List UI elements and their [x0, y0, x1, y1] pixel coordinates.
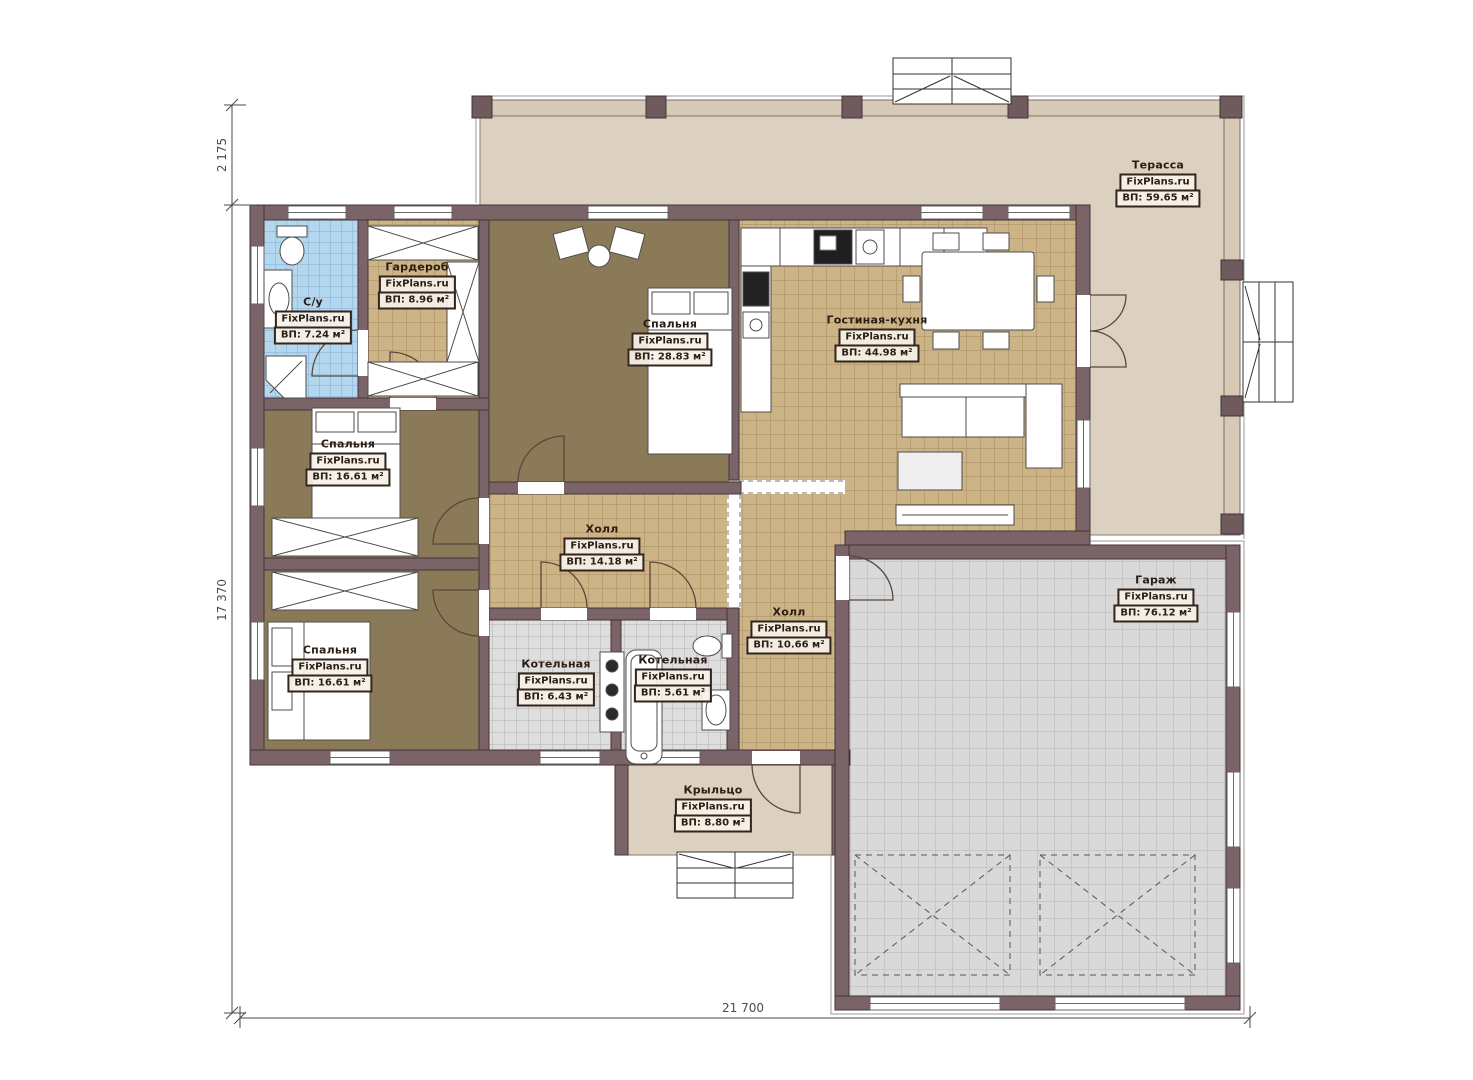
window-icon [588, 206, 668, 219]
room-name: Спальня [643, 318, 697, 331]
room-name: Спальня [321, 438, 375, 451]
room-area: ВП: 59.65 м² [1115, 190, 1200, 208]
wall-wardrobe-bedroom1 [479, 220, 489, 398]
window-icon [251, 246, 264, 304]
room-label-garage: Гараж FixPlans.ru ВП: 76.12 м² [1113, 574, 1198, 623]
window-icon [1077, 420, 1090, 488]
terrace-wall-right [1224, 100, 1240, 535]
room-area: ВП: 28.83 м² [627, 349, 712, 367]
room-name: Крыльцо [684, 784, 743, 797]
room-name: Терасса [1132, 159, 1184, 172]
wardrobe-icon [272, 572, 418, 610]
room-label-wardrobe: Гардероб FixPlans.ru ВП: 8.96 м² [378, 261, 456, 310]
dimension-label-left: 17 370 [215, 579, 229, 621]
window-icon [251, 622, 264, 680]
boiler-icon [600, 652, 624, 732]
window-icon [1227, 888, 1240, 963]
room-area: ВП: 16.61 м² [305, 469, 390, 487]
room-area: ВП: 14.18 м² [559, 554, 644, 572]
wall-bedrooms-hall [479, 410, 489, 750]
side-table-icon [588, 245, 610, 267]
wall-living-garage [845, 531, 1090, 545]
room-area: ВП: 8.96 м² [378, 292, 456, 310]
tv-bench-icon [896, 505, 1014, 525]
room-label-living-kitchen: Гостиная-кухня FixPlans.ru ВП: 44.98 м² [826, 314, 927, 363]
wall-bedroom2-bedroom3 [264, 558, 479, 570]
room-name: Котельная [521, 658, 590, 671]
window-icon [394, 206, 452, 219]
window-icon [540, 751, 600, 764]
floor-plan-canvas: Терасса FixPlans.ru ВП: 59.65 м² С/у Fix… [0, 0, 1473, 1080]
room-label-bedroom2: Спальня FixPlans.ru ВП: 16.61 м² [305, 438, 390, 487]
room-name: Гараж [1135, 574, 1177, 587]
rug-icon [898, 452, 962, 490]
wardrobe-icon [368, 362, 478, 396]
room-label-hall1: Холл FixPlans.ru ВП: 14.18 м² [559, 523, 644, 572]
room-name: Холл [586, 523, 619, 536]
room-name: Гостиная-кухня [826, 314, 927, 327]
room-label-bedroom3: Спальня FixPlans.ru ВП: 16.61 м² [287, 644, 372, 693]
room-label-porch: Крыльцо FixPlans.ru ВП: 8.80 м² [674, 784, 752, 833]
room-name: Гардероб [385, 261, 448, 274]
window-icon [251, 448, 264, 506]
bed-icon [648, 288, 732, 454]
stairs-icon [677, 852, 793, 898]
room-area: ВП: 10.66 м² [746, 637, 831, 655]
dimension-label-top-left: 2 175 [215, 138, 229, 172]
shower-icon [266, 356, 306, 398]
room-name: Спальня [303, 644, 357, 657]
room-area: ВП: 16.61 м² [287, 675, 372, 693]
window-icon [288, 206, 346, 219]
stairs-icon [1243, 282, 1293, 402]
room-area: ВП: 8.80 м² [674, 815, 752, 833]
room-name: Котельная [638, 654, 707, 667]
room-name: Холл [773, 606, 806, 619]
room-name: С/у [303, 296, 323, 309]
window-icon [921, 206, 983, 219]
garage-gate-icon [870, 997, 1000, 1010]
dimension-label-bottom: 21 700 [722, 1001, 764, 1015]
wardrobe-icon [368, 226, 478, 260]
window-icon [1008, 206, 1070, 219]
window-icon [330, 751, 390, 764]
room-label-bathroom: С/у FixPlans.ru ВП: 7.24 м² [274, 296, 352, 345]
room-label-hall2: Холл FixPlans.ru ВП: 10.66 м² [746, 606, 831, 655]
room-area: ВП: 76.12 м² [1113, 605, 1198, 623]
porch-wall-left [615, 765, 628, 855]
garage-gate-icon [1055, 997, 1185, 1010]
room-label-terrace: Терасса FixPlans.ru ВП: 59.65 м² [1115, 159, 1200, 208]
room-area: ВП: 6.43 м² [517, 689, 595, 707]
room-label-bedroom1: Спальня FixPlans.ru ВП: 28.83 м² [627, 318, 712, 367]
room-label-boiler2: Котельная FixPlans.ru ВП: 5.61 м² [634, 654, 712, 703]
window-icon [1227, 772, 1240, 847]
room-area: ВП: 44.98 м² [834, 345, 919, 363]
stairs-icon [893, 58, 1011, 104]
wardrobe-icon [272, 518, 418, 556]
garage-wall-left [835, 545, 849, 1010]
room-area: ВП: 5.61 м² [634, 685, 712, 703]
garage-wall-top [835, 545, 1240, 559]
window-icon [1227, 612, 1240, 687]
room-label-boiler1: Котельная FixPlans.ru ВП: 6.43 м² [517, 658, 595, 707]
room-area: ВП: 7.24 м² [274, 327, 352, 345]
